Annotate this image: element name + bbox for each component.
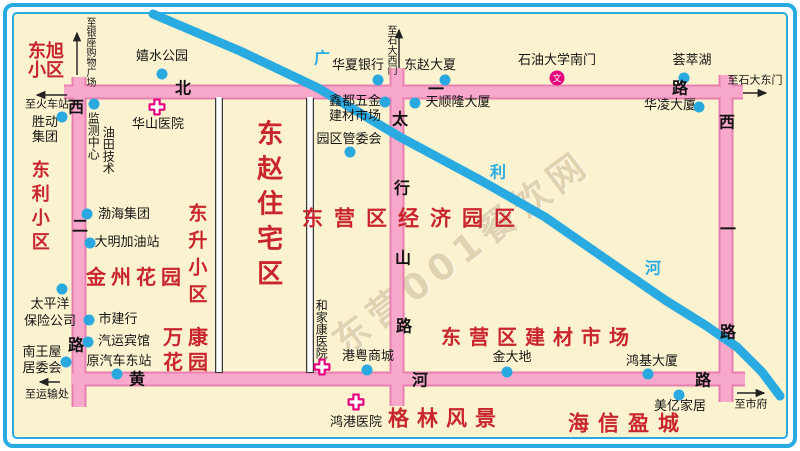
poi-line: 集团	[32, 130, 58, 145]
road-label-xi2: 西	[68, 97, 84, 116]
road-label-lu: 路	[672, 78, 688, 97]
poi-monitoring-center: 监测中心	[86, 112, 100, 160]
hospital-cross-icon	[148, 98, 166, 116]
area-jinzhou: 金州花园	[86, 265, 186, 289]
poi-dot	[502, 367, 513, 378]
map-canvas: 东营001餐饮网	[0, 0, 800, 451]
poi-city-construction-bank: 市建行	[98, 312, 137, 328]
area-wankang: 万康花园	[163, 325, 213, 375]
poi-dot	[362, 365, 373, 376]
area-dongzhao-residential: 东赵住宅区	[251, 120, 282, 295]
poi-dot	[674, 390, 685, 401]
poi-line: 太平洋	[30, 297, 69, 312]
poi-daming-gas-station: 大明加油站	[94, 235, 159, 251]
poi-xindu-hardware-market: 鑫都五金建材市场	[329, 95, 381, 125]
poi-dot	[57, 112, 68, 123]
river-label-guang: 广	[314, 48, 330, 67]
area-building-material-market: 东营区建材市场	[441, 325, 637, 349]
poi-qiyun-hotel: 汽运宾馆	[98, 334, 150, 350]
poi-honggang-hospital: 鸿港医院	[330, 415, 382, 431]
poi-dot	[345, 147, 356, 158]
poi-meiyi-home: 美亿家居	[654, 399, 706, 415]
road-label-huang: 黄	[129, 369, 145, 388]
poi-hejiakang-hospital: 和家康医院	[314, 299, 328, 359]
poi-dot	[89, 99, 100, 110]
road-label-er2: 二	[72, 216, 88, 235]
poi-huicui-lake: 荟萃湖	[672, 53, 711, 69]
area-line: 小区	[28, 60, 64, 81]
area-dongxu: 东旭小区	[28, 43, 64, 81]
road-label-shan: 山	[395, 248, 411, 267]
area-haixin: 海信盈城	[568, 411, 688, 436]
poi-dot	[61, 357, 72, 368]
poi-line: 南王屋	[22, 345, 61, 360]
poi-line: 建材市场	[329, 109, 381, 124]
area-line: 花园	[163, 350, 213, 374]
area-dongsheng: 东升小区	[185, 203, 208, 311]
poi-park-committee: 园区管委会	[316, 132, 381, 148]
road-label-lu3: 路	[695, 370, 711, 389]
svg-text:文: 文	[552, 73, 561, 85]
area-dongli: 东利小区	[28, 160, 50, 256]
poi-dot	[112, 369, 123, 380]
road-label-tai: 太	[392, 109, 408, 128]
edge-to-city-hall: 至市府	[735, 397, 768, 410]
poi-dot	[57, 284, 68, 295]
poi-hualing-tower: 华凌大厦	[644, 98, 696, 114]
road-label-yi1: 一	[720, 219, 736, 238]
poi-xishui-park: 嬉水公园	[136, 49, 188, 65]
area-gelin: 格林风景	[388, 406, 504, 431]
poi-dot	[410, 98, 421, 109]
road-label-hang: 行	[394, 178, 410, 197]
poi-dot	[84, 315, 95, 326]
school-icon: 文	[549, 70, 566, 87]
poi-petroleum-university-south-gate: 石油大学南门	[518, 53, 596, 69]
hospital-cross-icon	[313, 358, 331, 376]
poi-dot	[85, 238, 96, 249]
road-label-yi: 一	[428, 79, 444, 98]
poi-line: 鑫都五金	[329, 94, 381, 109]
poi-dot	[694, 102, 705, 113]
poi-shengdong-group: 胜动集团	[32, 116, 58, 146]
road-label-xi1: 西	[719, 112, 735, 131]
poi-bohai-group: 渤海集团	[98, 207, 150, 223]
poi-former-east-bus-station: 原汽车东站	[86, 354, 151, 370]
poi-dongzhao-tower: 东赵大夏	[404, 58, 456, 74]
edge-to-yinzuo-mall: 至银座购物广场	[83, 17, 95, 87]
poi-oilfield-technology: 油田技术	[101, 126, 115, 174]
poi-dot	[83, 337, 94, 348]
river-label-li: 利	[490, 162, 506, 181]
edge-to-railway-station: 至火车站	[25, 97, 69, 110]
edge-to-shida-east-gate: 至石大东门	[728, 73, 783, 86]
poi-hongji-tower: 鸿基大厦	[626, 354, 678, 370]
road-label-lu2: 路	[68, 335, 84, 354]
poi-nanwangwu-committee: 南王屋居委会	[22, 345, 61, 378]
edge-to-shida-west-gate: 至石大西门	[384, 25, 396, 75]
road-label-bei: 北	[175, 78, 191, 97]
edge-to-transport-office: 至运输处	[25, 387, 69, 400]
poi-dot	[643, 369, 654, 380]
area-line: 万康	[163, 325, 213, 349]
poi-dot	[157, 69, 168, 80]
poi-jindadi: 金大地	[492, 350, 531, 366]
road-label-he: 河	[412, 370, 428, 389]
poi-line: 胜动	[32, 115, 58, 130]
hospital-cross-icon	[347, 393, 365, 411]
river-label-he: 河	[645, 258, 661, 277]
poi-huashan-hospital: 华山医院	[132, 117, 184, 133]
road-label-lu5: 路	[720, 322, 736, 341]
poi-line: 保险公司	[24, 314, 76, 329]
poi-line: 居委会	[22, 361, 61, 376]
area-line: 东旭	[28, 41, 64, 62]
road-label-lu4: 路	[396, 316, 412, 335]
poi-pacific-insurance: 太平洋保险公司	[24, 297, 76, 331]
area-economic-park: 东营区经济园区	[302, 206, 526, 231]
poi-dot	[373, 75, 384, 86]
poi-huaxia-bank: 华夏银行	[332, 58, 384, 74]
poi-dot	[380, 97, 391, 108]
poi-gangyue-mall: 港粤商城	[342, 349, 394, 365]
